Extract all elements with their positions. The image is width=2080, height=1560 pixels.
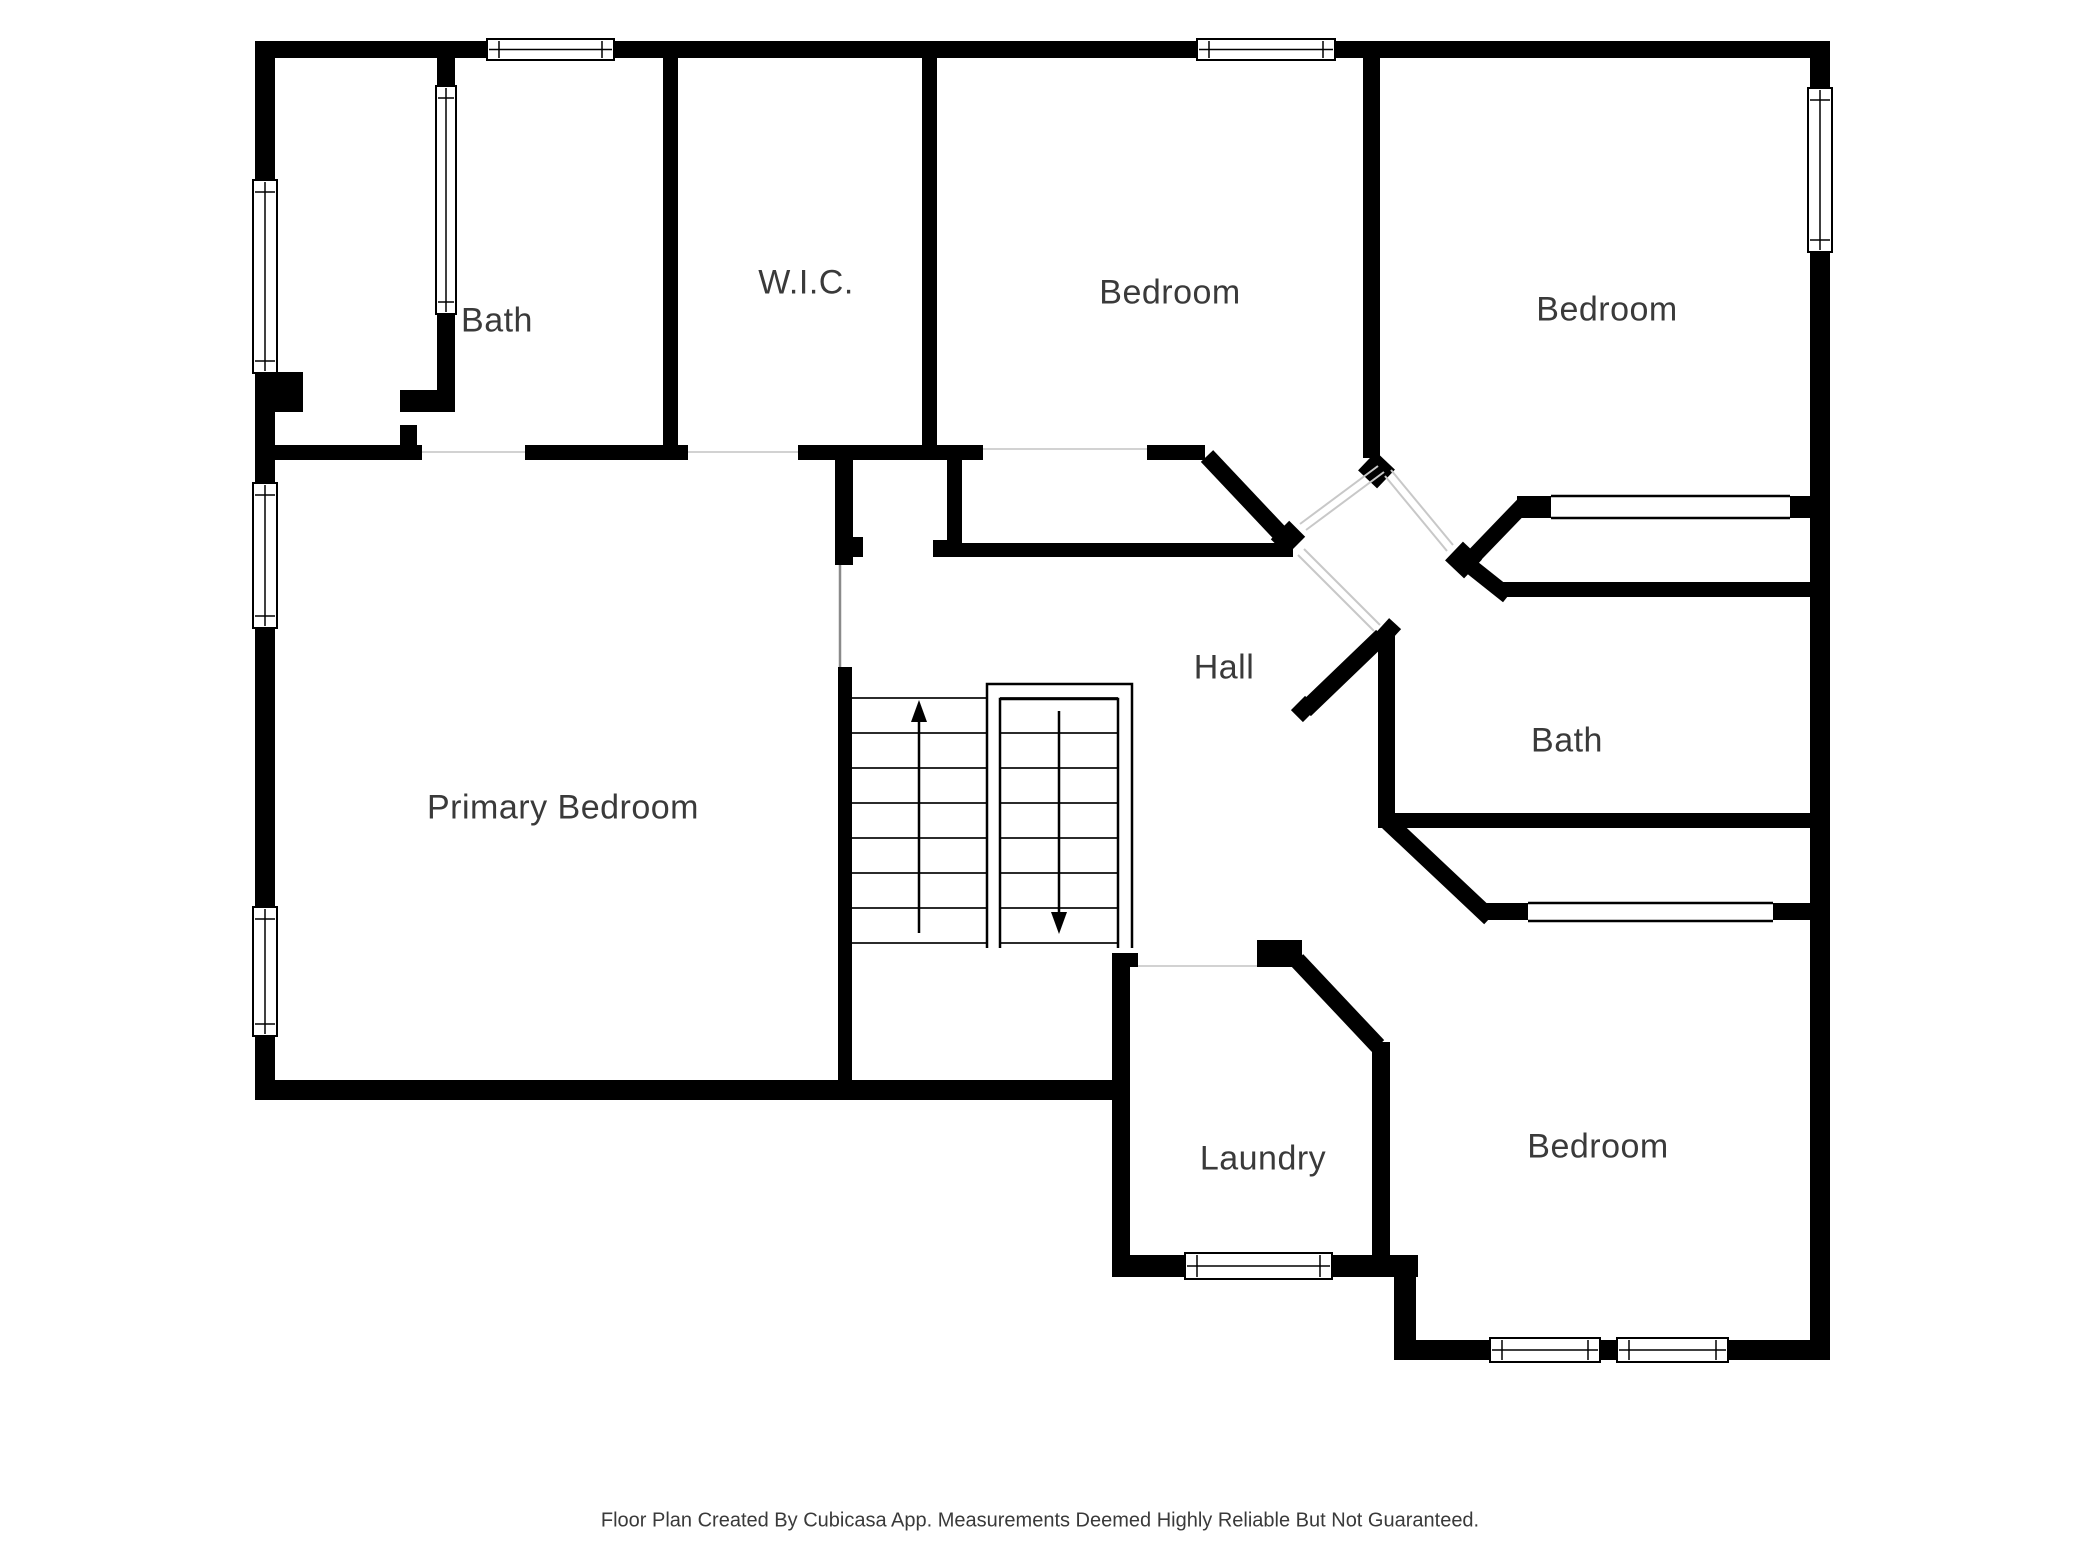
diagonal-wall <box>1367 461 1386 479</box>
room-label-wic: W.I.C. <box>758 264 854 303</box>
cased-opening-gap <box>1551 494 1790 520</box>
wall <box>1378 633 1395 813</box>
wall <box>835 458 853 565</box>
window <box>1808 88 1832 252</box>
window <box>1617 1338 1728 1362</box>
wall <box>1372 1042 1390 1277</box>
door-leaf <box>1300 466 1378 524</box>
wall <box>1147 445 1205 460</box>
wall <box>798 445 983 460</box>
cased-opening-gap <box>1528 901 1773 923</box>
wall <box>1773 903 1810 920</box>
room-label-bedroom-top-right: Bedroom <box>1536 291 1677 330</box>
wall <box>255 1080 1130 1100</box>
diagonal-wall <box>1305 636 1382 710</box>
wall <box>663 58 678 445</box>
wall <box>933 540 947 557</box>
window <box>487 39 614 60</box>
door-leaf <box>1298 555 1374 631</box>
window <box>253 180 277 373</box>
room-label-laundry: Laundry <box>1200 1140 1326 1179</box>
floor-plan-drawing <box>0 0 2080 1560</box>
wall <box>275 372 303 412</box>
diagonal-wall <box>1471 505 1523 559</box>
room-label-hall: Hall <box>1194 649 1255 688</box>
wall <box>1378 813 1810 828</box>
wall <box>962 543 1293 557</box>
window <box>253 907 277 1036</box>
cased-opening <box>1551 494 1790 520</box>
wall <box>1502 582 1810 597</box>
wall <box>437 58 455 88</box>
floor-plan-page: Bath W.I.C. Bedroom Bedroom Primary Bedr… <box>0 0 2080 1560</box>
window <box>1185 1253 1332 1279</box>
wall <box>437 313 455 412</box>
disclaimer-text: Floor Plan Created By Cubicasa App. Meas… <box>601 1510 1479 1533</box>
wall <box>838 667 852 1080</box>
window <box>1490 1338 1600 1362</box>
wall <box>853 537 863 557</box>
door-leaf <box>1391 470 1453 545</box>
wall <box>1363 58 1380 458</box>
wall <box>400 390 437 412</box>
wall <box>1790 496 1810 518</box>
room-label-bedroom-top-middle: Bedroom <box>1099 274 1240 313</box>
cased-opening <box>1528 901 1773 923</box>
window <box>436 86 456 314</box>
door-leaf <box>1306 472 1384 530</box>
room-label-primary-bedroom: Primary Bedroom <box>427 789 699 828</box>
window <box>253 483 277 628</box>
stair-down-arrow <box>1051 711 1067 934</box>
window <box>1197 39 1335 60</box>
wall <box>1112 953 1130 1277</box>
wall <box>1394 1340 1830 1360</box>
wall <box>947 458 962 557</box>
staircase <box>852 684 1132 948</box>
cased-openings <box>1528 494 1790 923</box>
diagonal-wall <box>1297 960 1378 1046</box>
door-leaf <box>1304 549 1380 625</box>
diagonal-wall <box>1381 627 1393 638</box>
wall <box>525 445 688 460</box>
stair-down-arrow-head <box>1051 912 1067 934</box>
diagonal-wall <box>1207 456 1290 544</box>
diagonal-wall <box>1388 822 1490 918</box>
room-label-bath-right: Bath <box>1531 722 1603 761</box>
stair-up-arrow <box>911 700 927 933</box>
diagonal-wall <box>1280 530 1296 546</box>
diagonal-wall <box>1469 565 1508 596</box>
door-leaves <box>1298 466 1453 631</box>
room-label-bedroom-bottom: Bedroom <box>1527 1128 1668 1167</box>
diagonal-wall <box>1298 703 1310 715</box>
wall <box>400 425 417 445</box>
stair-up-arrow-head <box>911 700 927 722</box>
wall <box>922 58 937 458</box>
room-label-bath-upper: Bath <box>461 302 533 341</box>
wall <box>275 445 422 460</box>
door-leaf <box>1385 476 1447 551</box>
